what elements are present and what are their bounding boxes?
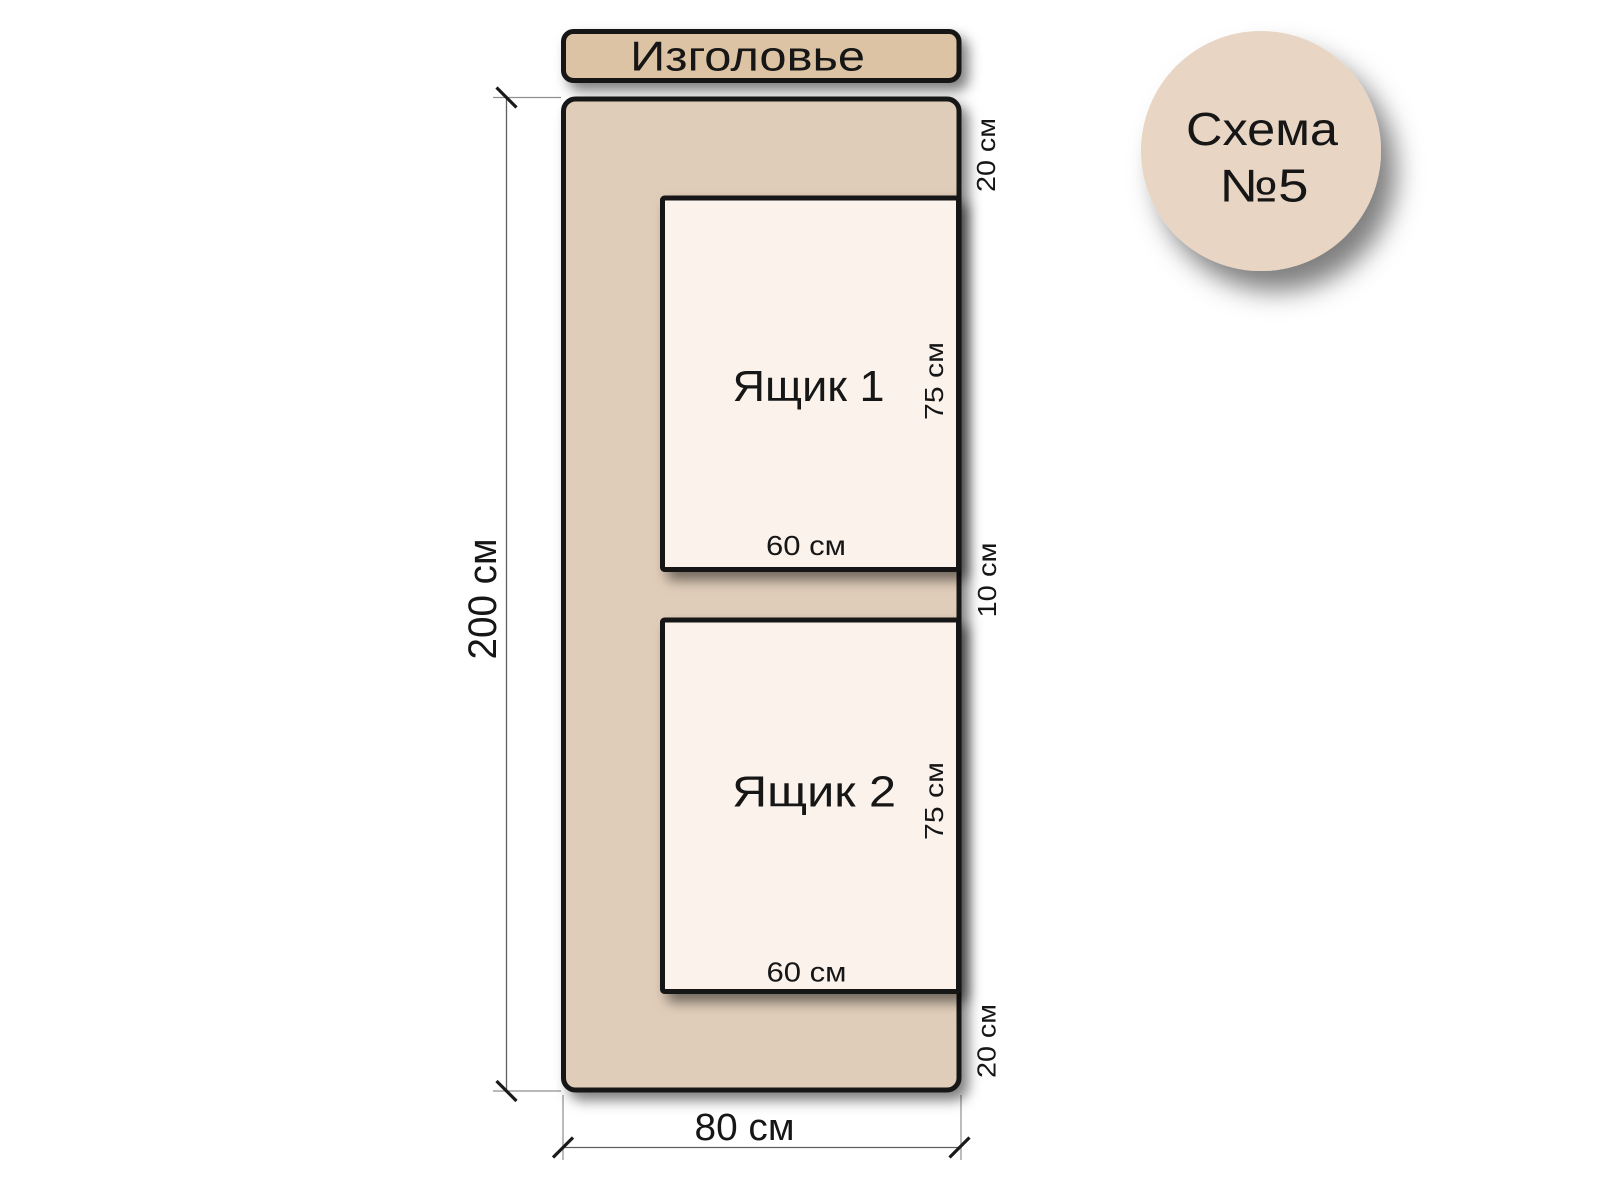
svg-text:80 см: 80 см [695,1107,795,1149]
svg-text:60 см: 60 см [766,530,846,561]
svg-text:60 см: 60 см [767,957,847,988]
svg-text:Ящик 2: Ящик 2 [732,768,896,817]
svg-text:№5: №5 [1220,160,1309,212]
svg-text:200 см: 200 см [461,539,505,660]
svg-text:Изголовье: Изголовье [630,33,865,80]
svg-text:75 см: 75 см [919,342,949,420]
svg-text:Схема: Схема [1186,103,1338,155]
svg-text:75 см: 75 см [919,762,949,840]
svg-text:20 см: 20 см [971,118,1001,192]
svg-text:20 см: 20 см [972,1004,1002,1078]
svg-text:Ящик 1: Ящик 1 [733,362,885,411]
svg-text:10 см: 10 см [972,543,1002,618]
